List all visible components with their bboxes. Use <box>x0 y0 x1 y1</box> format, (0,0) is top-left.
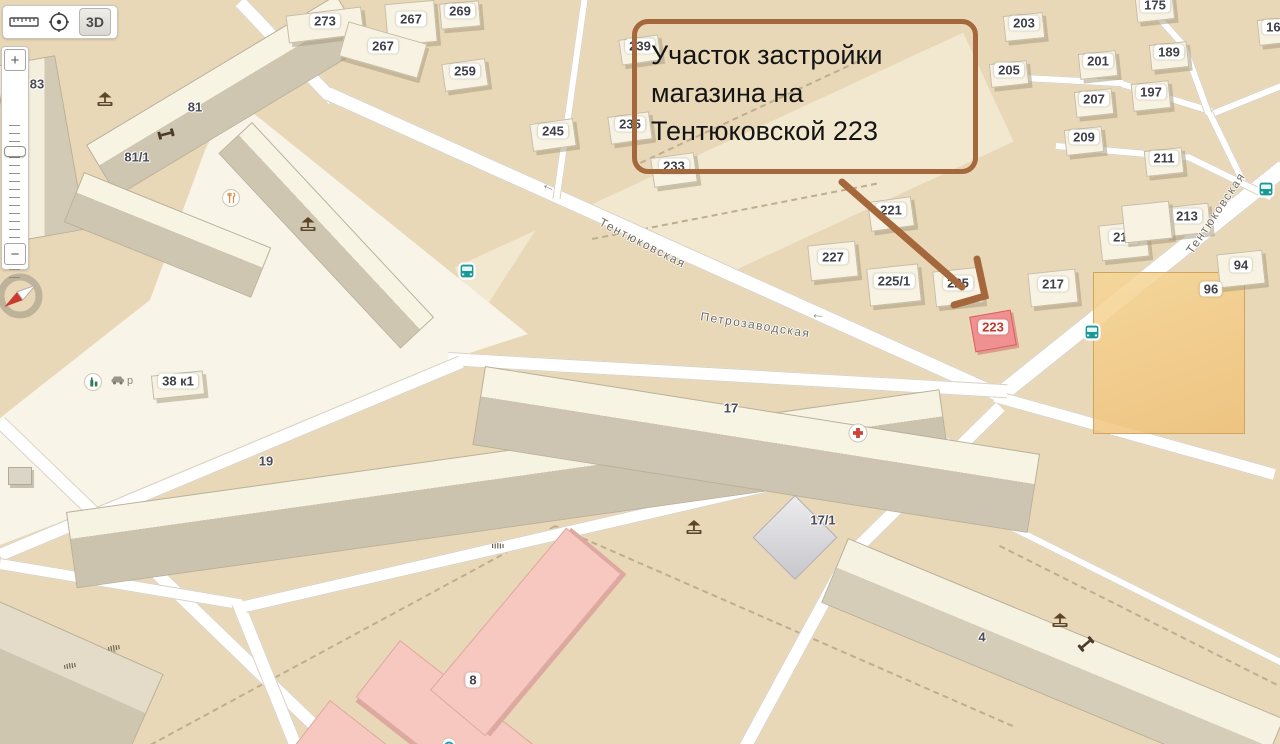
building-number-label: 203 <box>1009 16 1039 31</box>
building-number-label: 94 <box>1230 258 1252 273</box>
building-number-label: 225/1 <box>874 274 915 289</box>
building-number-label: 217 <box>1038 277 1068 292</box>
bus-icon[interactable] <box>1082 322 1102 342</box>
ruler-icon[interactable] <box>9 16 39 28</box>
building-number-label: 38 к1 <box>158 374 198 389</box>
annotation-line: магазина на <box>637 74 973 112</box>
map-toolbar: 3D <box>2 5 118 39</box>
zoom-slider-handle[interactable] <box>4 146 26 157</box>
building-number-label: 8 <box>465 673 480 688</box>
mode-3d-button[interactable]: 3D <box>79 8 111 36</box>
building-number-label: 17 <box>724 401 738 416</box>
building-number-label: 225 <box>943 276 973 291</box>
building-number-label: 96 <box>1200 282 1222 297</box>
building-number-label: 273 <box>310 14 340 29</box>
zoom-in-button[interactable]: + <box>4 49 26 71</box>
restaurant-icon <box>222 189 240 207</box>
building-number-label: 201 <box>1083 54 1113 69</box>
fence-icon <box>492 543 504 549</box>
locate-icon[interactable] <box>47 10 71 34</box>
arrow-icon: ← <box>810 306 826 322</box>
building-number-label: 19 <box>259 454 273 469</box>
building-number-label: 175 <box>1140 0 1170 13</box>
building-number-label: 269 <box>445 4 475 19</box>
zoom-out-button[interactable]: − <box>4 243 26 265</box>
building-number-label: 223 <box>978 320 1008 335</box>
building-number-label: 207 <box>1079 92 1109 107</box>
playground-icon <box>1051 613 1070 629</box>
building-number-label: 161 <box>1262 20 1280 35</box>
svg-text:р: р <box>127 375 133 386</box>
dot-icon <box>441 737 457 744</box>
building-number-label: 211 <box>1150 151 1179 166</box>
building-number-label: 4 <box>978 630 985 645</box>
playground-icon <box>299 217 318 233</box>
building-number-label: 189 <box>1154 45 1184 60</box>
compass-control[interactable] <box>0 270 46 322</box>
building-number-label: 267 <box>396 12 426 27</box>
annotation-box: Участок застройки магазина на Тентюковск… <box>632 19 978 174</box>
building-house <box>1121 201 1173 244</box>
annotation-line: Тентюковской 223 <box>637 112 973 150</box>
building-number-label: 209 <box>1069 130 1099 145</box>
building-small <box>8 467 32 485</box>
annotation-line: Участок застройки <box>637 36 973 74</box>
building-number-label: 17/1 <box>810 513 835 528</box>
building-number-label: 259 <box>450 64 480 79</box>
playground-icon <box>685 520 704 536</box>
zoom-control: + − <box>1 46 29 270</box>
beer-icon <box>84 373 102 391</box>
building-number-label: 81/1 <box>124 150 149 165</box>
bus-icon[interactable] <box>457 261 477 281</box>
building-number-label: 83 <box>30 77 44 92</box>
playground-icon <box>96 92 115 108</box>
building-number-label: 267 <box>368 39 398 54</box>
building-number-label: 227 <box>818 250 848 265</box>
building-96 <box>1093 272 1245 434</box>
building-number-label: 205 <box>994 63 1024 78</box>
building-number-label: 81 <box>188 100 202 115</box>
parking-icon: р <box>111 372 137 386</box>
medical-icon <box>849 424 868 443</box>
building-number-label: 213 <box>1172 209 1202 224</box>
map-canvas[interactable]: 273267269267259245239235233221227225/122… <box>0 0 1280 744</box>
bus-icon[interactable] <box>1256 179 1276 199</box>
building-number-label: 197 <box>1136 85 1166 100</box>
building-number-label: 245 <box>538 124 568 139</box>
building-number-label: 221 <box>876 203 906 218</box>
